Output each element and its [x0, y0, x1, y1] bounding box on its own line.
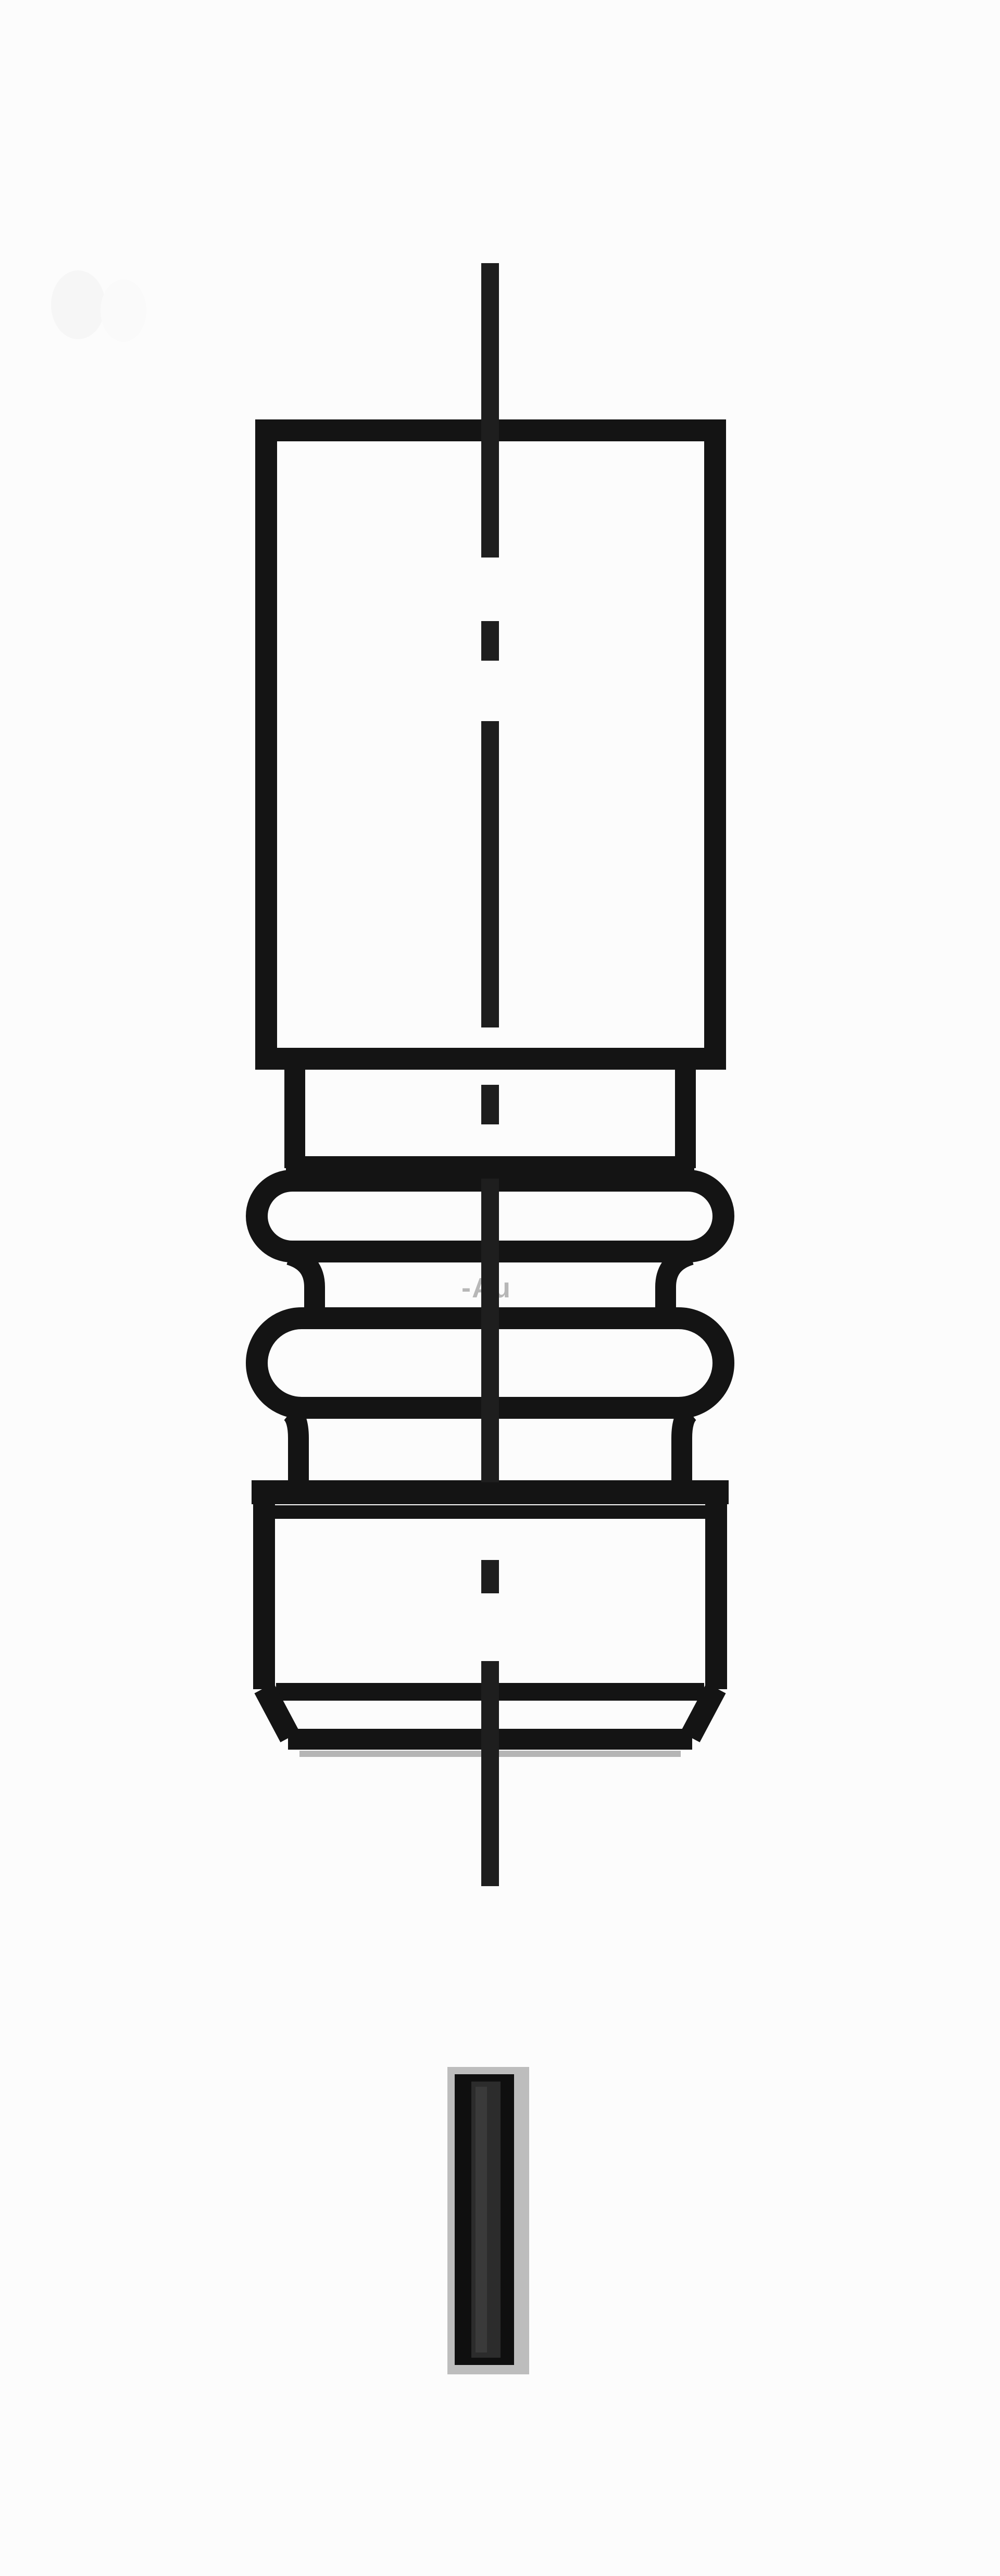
neck-curve-left — [291, 1412, 298, 1491]
valve-technical-drawing: -Au — [0, 0, 1000, 2576]
paper-smudge-1 — [51, 270, 105, 339]
technical-drawing-page: -Au — [0, 0, 1000, 2576]
end-bar-highlight — [476, 2087, 487, 2352]
neck-curve-right — [682, 1412, 690, 1491]
paper-smudge-2 — [101, 279, 146, 342]
